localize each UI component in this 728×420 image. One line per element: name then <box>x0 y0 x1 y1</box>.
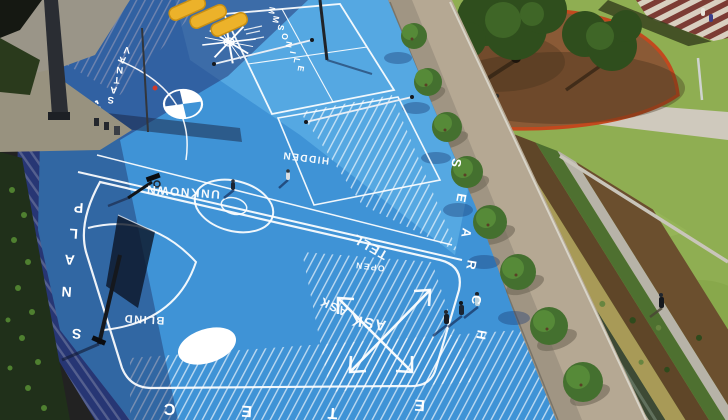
aerial-park-photo: UNKNOWN HIDDEN BLIND TELL OPEN ASK ASK S… <box>0 0 728 420</box>
edge-letter: A <box>64 252 75 269</box>
street-tree <box>414 68 442 96</box>
edge-letter: L <box>68 226 78 243</box>
edge-letter: N <box>61 284 72 301</box>
court-word-blind: BLIND <box>123 312 165 326</box>
edge-letter: N <box>116 64 124 75</box>
scene-canvas: UNKNOWN HIDDEN BLIND TELL OPEN ASK ASK S… <box>0 0 728 420</box>
edge-letter: E <box>240 402 252 420</box>
red-marker <box>153 86 158 91</box>
edge-letter: A <box>110 84 118 95</box>
edge-letter: P <box>73 200 83 217</box>
edge-letter: S <box>107 94 114 105</box>
edge-letter: S <box>71 326 81 343</box>
street-tree <box>530 307 568 345</box>
edge-letter: T <box>113 74 120 85</box>
street-tree <box>432 112 462 142</box>
street-tree <box>563 362 603 402</box>
edge-letter: A <box>119 54 127 65</box>
street-tree <box>473 205 507 239</box>
edge-letter: C <box>163 400 176 418</box>
street-tree <box>401 23 427 49</box>
edge-letter: E <box>413 396 425 414</box>
street-tree <box>500 254 536 290</box>
edge-letter: T <box>327 404 338 420</box>
